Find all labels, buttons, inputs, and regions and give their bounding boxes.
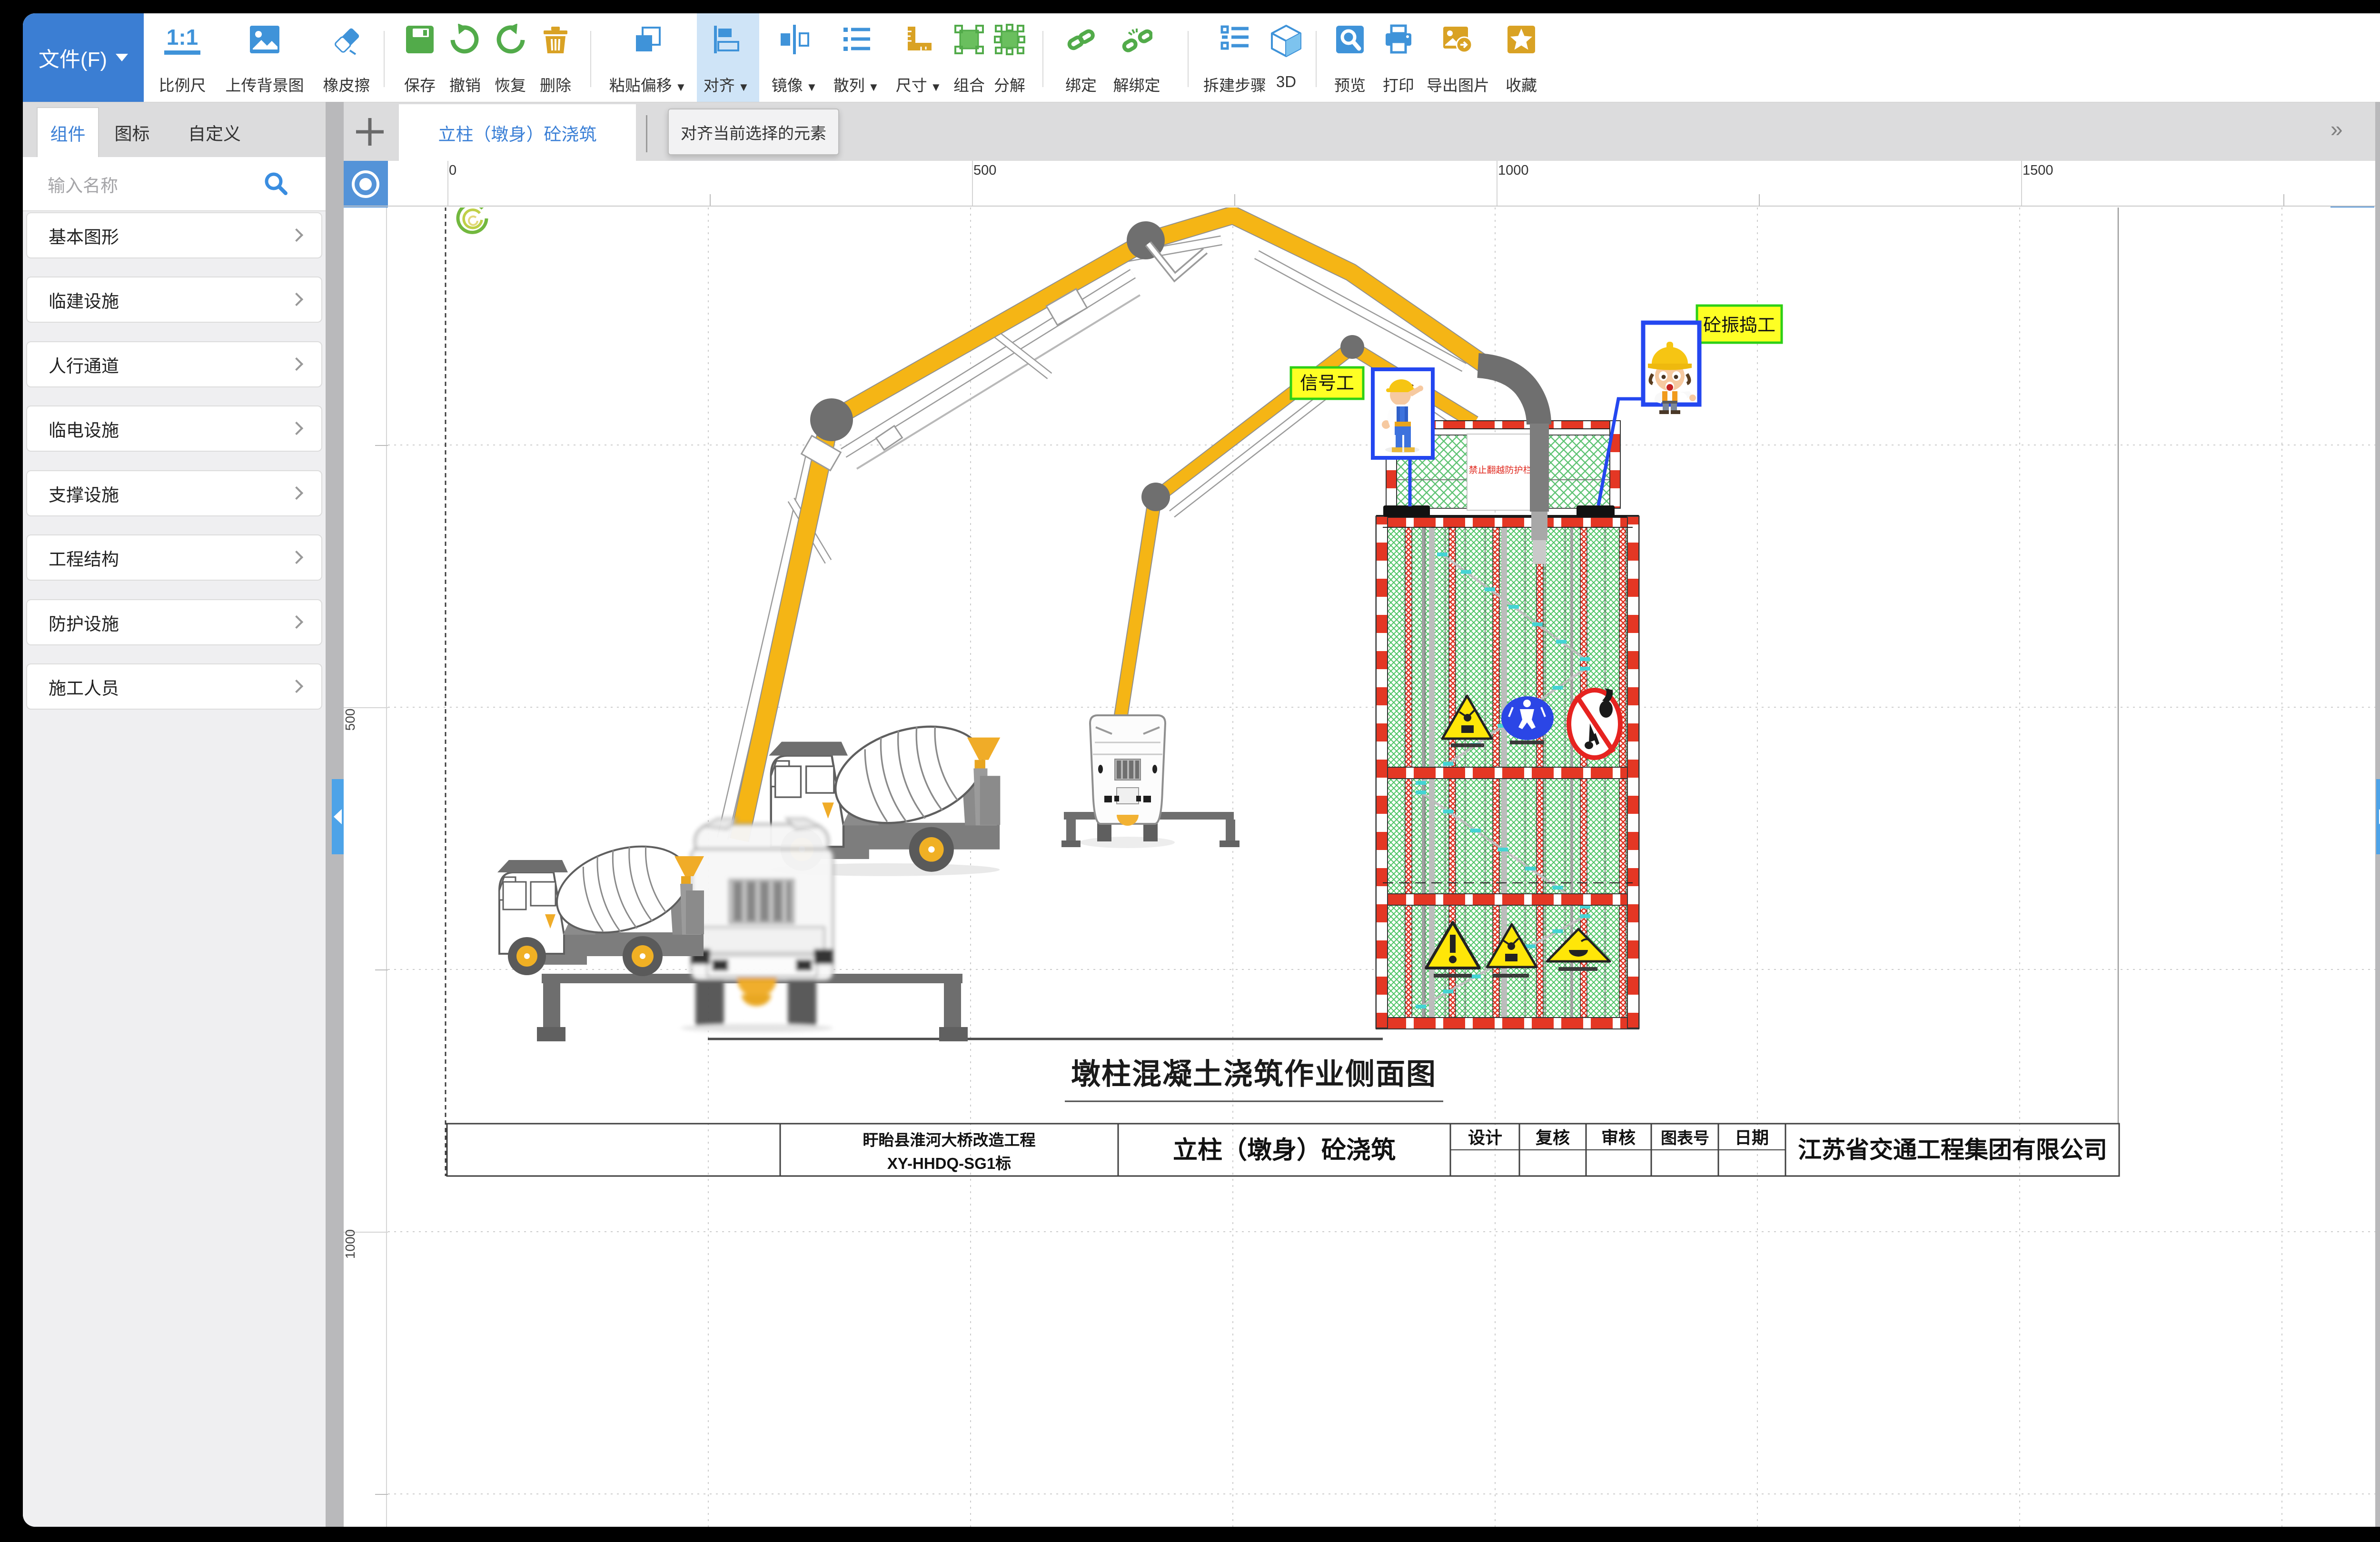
svg-text:砼振捣工: 砼振捣工	[1703, 316, 1775, 336]
svg-text:XY-HHDQ-SG1标: XY-HHDQ-SG1标	[887, 1155, 1011, 1172]
svg-text:墩柱混凝土浇筑作业侧面图: 墩柱混凝土浇筑作业侧面图	[1071, 1058, 1437, 1091]
svg-text:日期: 日期	[1735, 1128, 1769, 1147]
svg-text:1:1: 1:1	[167, 25, 198, 49]
svg-text:盱眙县淮河大桥改造工程: 盱眙县淮河大桥改造工程	[863, 1131, 1036, 1149]
svg-text:设计: 设计	[1468, 1128, 1502, 1147]
svg-text:信号工: 信号工	[1300, 374, 1354, 394]
svg-text:江苏省交通工程集团有限公司: 江苏省交通工程集团有限公司	[1798, 1137, 2107, 1163]
svg-text:图表号: 图表号	[1661, 1129, 1709, 1147]
svg-text:审核: 审核	[1601, 1128, 1636, 1147]
svg-text:立柱（墩身）砼浇筑: 立柱（墩身）砼浇筑	[1173, 1137, 1396, 1164]
svg-text:复核: 复核	[1536, 1128, 1570, 1147]
svg-text:禁止翻越防护栏: 禁止翻越防护栏	[1468, 465, 1532, 475]
